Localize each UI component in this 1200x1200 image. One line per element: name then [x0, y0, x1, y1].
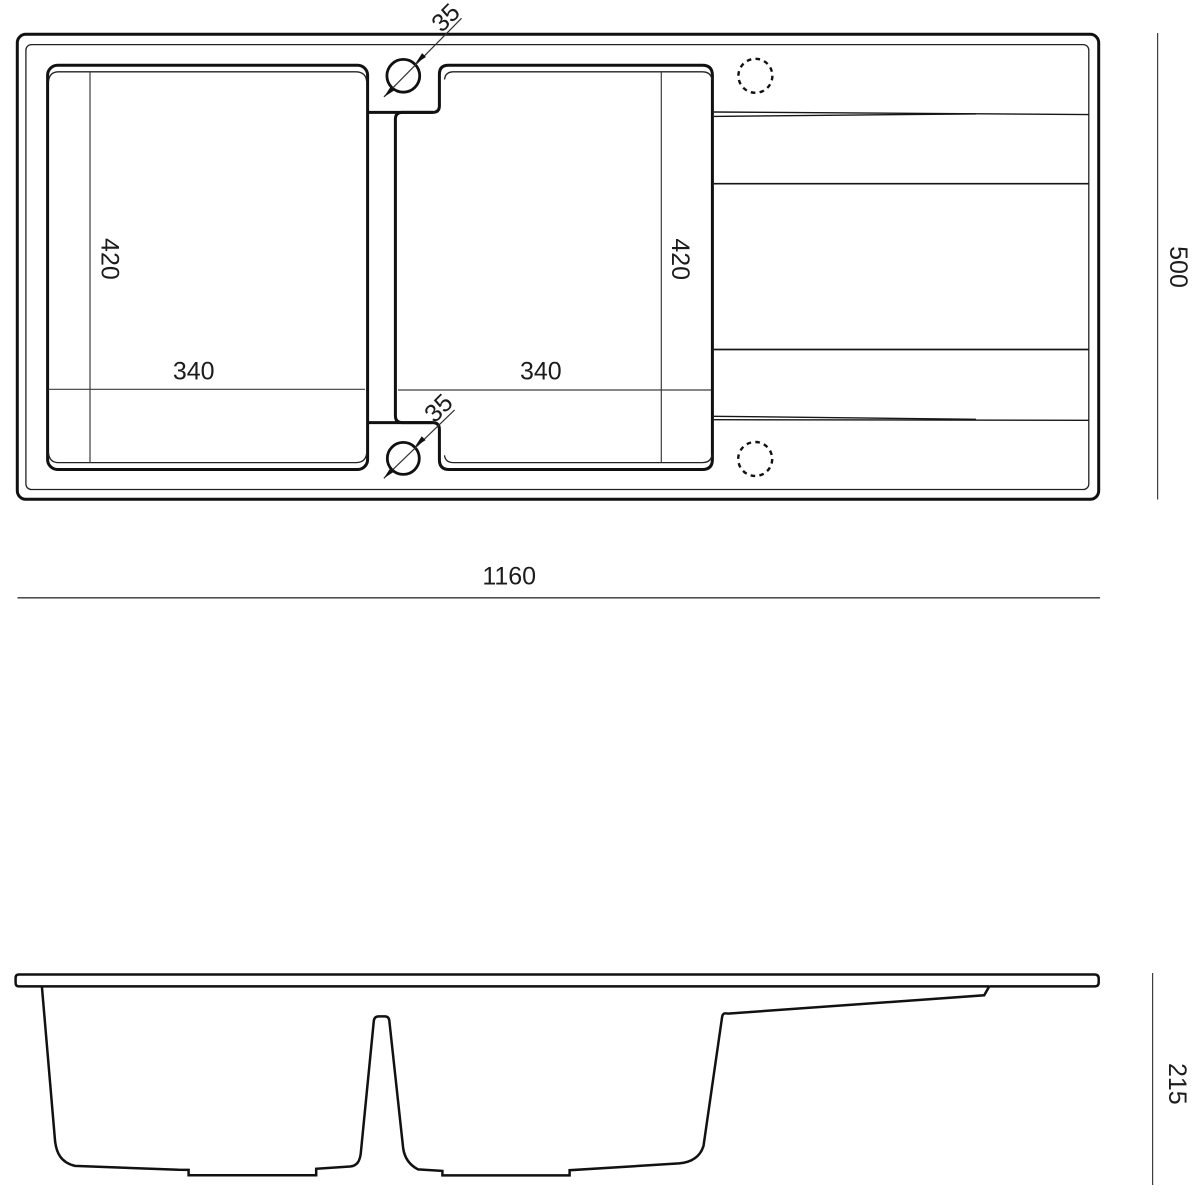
svg-text:1160: 1160 [482, 563, 536, 591]
svg-text:420: 420 [666, 238, 694, 280]
svg-text:340: 340 [173, 358, 215, 386]
svg-text:340: 340 [520, 358, 562, 386]
svg-text:500: 500 [1164, 246, 1192, 288]
svg-text:215: 215 [1163, 1063, 1191, 1105]
svg-text:420: 420 [96, 238, 124, 280]
